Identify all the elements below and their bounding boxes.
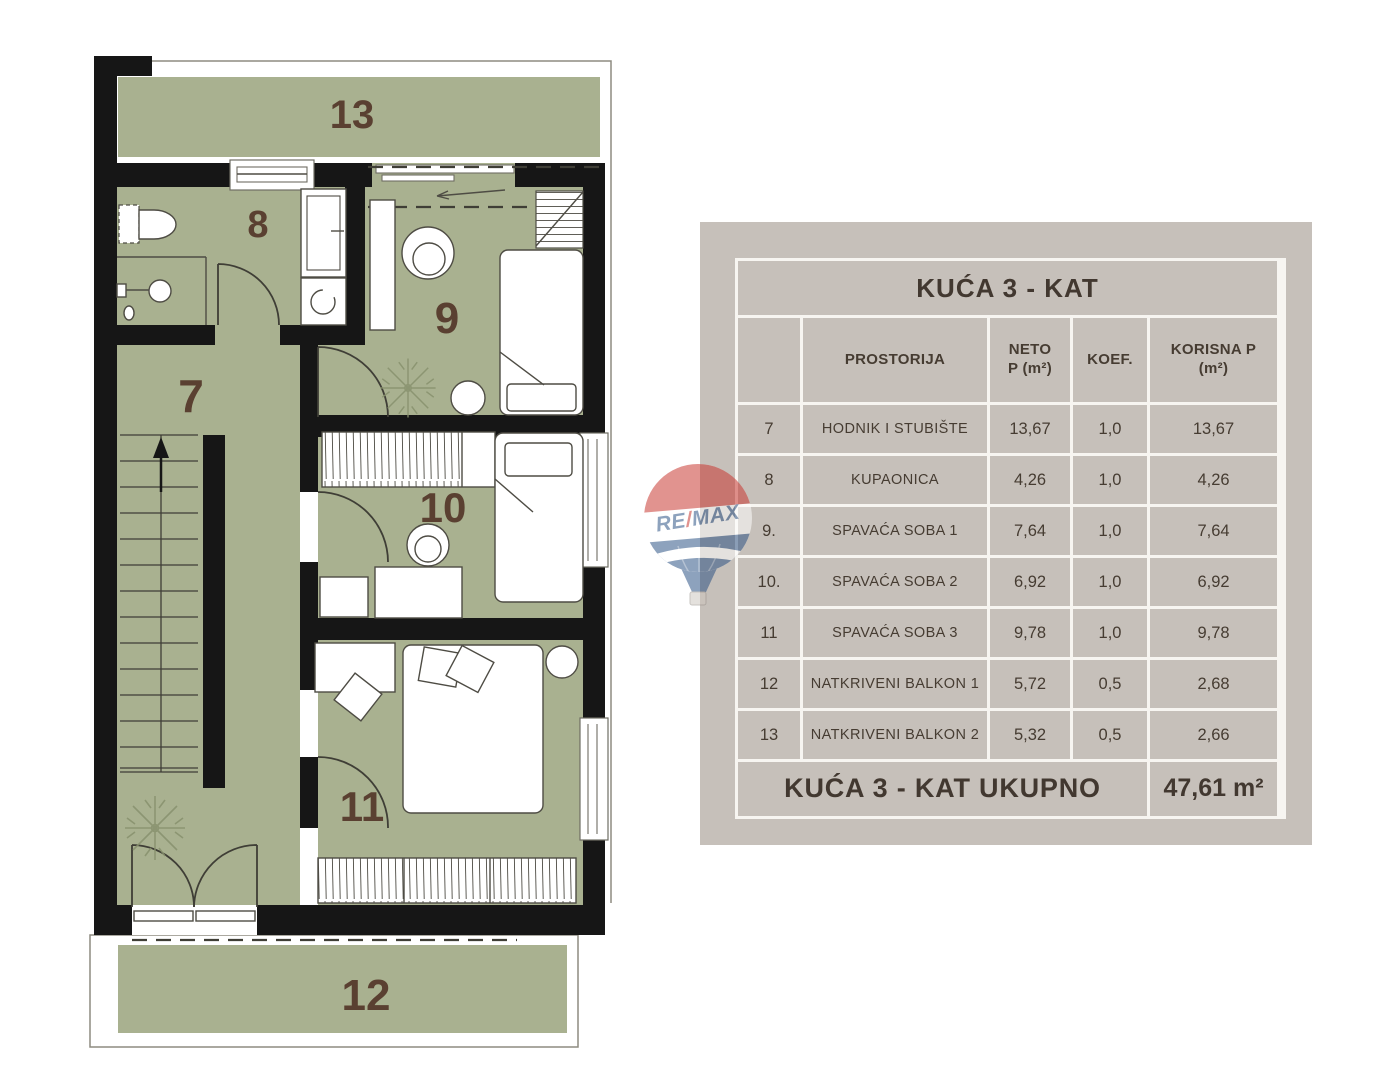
row-korisna: 2,68 (1150, 660, 1277, 708)
row-korisna: 4,26 (1150, 456, 1277, 504)
row-koef: 1,0 (1073, 609, 1147, 657)
bathroom-window-icon (230, 160, 314, 190)
toilet-icon (139, 210, 176, 239)
header-neto: NETO P (m²) (990, 318, 1070, 402)
desk-icon (375, 567, 462, 618)
single-bed-icon (500, 250, 583, 415)
flyer-page: 13 8 9 7 10 11 12 KUĆA 3 - KAT PROSTORIJ… (0, 0, 1398, 1080)
radiator-icon (536, 191, 583, 248)
wardrobe-icon (322, 432, 495, 487)
row-koef: 1,0 (1073, 405, 1147, 453)
cabinet-icon (320, 577, 368, 617)
room-label-8: 8 (247, 204, 268, 246)
balloon-basket-icon (690, 592, 706, 605)
row-name: SPAVAĆA SOBA 2 (803, 558, 987, 606)
row-neto: 5,32 (990, 711, 1070, 759)
room-label-9: 9 (435, 294, 459, 343)
stair-stringer (203, 435, 225, 788)
single-bed-icon (495, 433, 583, 602)
row-neto: 7,64 (990, 507, 1070, 555)
row-name: SPAVAĆA SOBA 3 (803, 609, 987, 657)
header-neto-line2: P (m²) (1008, 360, 1052, 379)
window-bedroom-10-icon (580, 433, 608, 567)
row-num: 7 (738, 405, 800, 453)
room-label-13: 13 (330, 93, 375, 137)
room-label-12: 12 (342, 971, 391, 1020)
header-korisna-line1: KORISNA P (1171, 341, 1257, 360)
area-table-panel: KUĆA 3 - KAT PROSTORIJA NETO P (m²) KOEF… (700, 222, 1312, 845)
table-footer-total: 47,61 m² (1150, 762, 1277, 816)
logo-text-re: RE (654, 509, 688, 537)
table-footer-label: KUĆA 3 - KAT UKUPNO (738, 762, 1147, 816)
row-korisna: 6,92 (1150, 558, 1277, 606)
table-title: KUĆA 3 - KAT (738, 261, 1277, 315)
header-korisna-line2: (m²) (1199, 360, 1229, 379)
double-bed-icon (403, 645, 543, 813)
header-neto-line1: NETO (1009, 341, 1052, 360)
header-koef: KOEF. (1073, 318, 1147, 402)
row-name: NATKRIVENI BALKON 2 (803, 711, 987, 759)
header-korisna: KORISNA P (m²) (1150, 318, 1277, 402)
row-neto: 6,92 (990, 558, 1070, 606)
shower-icon (301, 189, 346, 277)
row-num: 12 (738, 660, 800, 708)
row-korisna: 13,67 (1150, 405, 1277, 453)
remax-balloon-logo: RE/MAX (640, 460, 758, 612)
row-neto: 13,67 (990, 405, 1070, 453)
area-table: KUĆA 3 - KAT PROSTORIJA NETO P (m²) KOEF… (735, 258, 1286, 819)
row-neto: 4,26 (990, 456, 1070, 504)
desk-icon (370, 200, 395, 330)
header-prostorija: PROSTORIJA (803, 318, 987, 402)
row-korisna: 7,64 (1150, 507, 1277, 555)
row-koef: 0,5 (1073, 711, 1147, 759)
row-name: NATKRIVENI BALKON 1 (803, 660, 987, 708)
window-bedroom-11-icon (580, 718, 608, 840)
row-koef: 1,0 (1073, 507, 1147, 555)
row-koef: 1,0 (1073, 456, 1147, 504)
header-num (738, 318, 800, 402)
wardrobe-icon (318, 858, 576, 903)
row-name: SPAVAĆA SOBA 1 (803, 507, 987, 555)
balloon-icon: RE/MAX (640, 460, 758, 605)
row-korisna: 2,66 (1150, 711, 1277, 759)
row-num: 13 (738, 711, 800, 759)
row-neto: 9,78 (990, 609, 1070, 657)
row-neto: 5,72 (990, 660, 1070, 708)
stool-icon (451, 381, 485, 415)
floor-plan: 13 8 9 7 10 11 12 (0, 0, 660, 1080)
row-num: 11 (738, 609, 800, 657)
office-chair-icon (402, 227, 454, 279)
toilet-cistern-icon (119, 205, 139, 243)
row-name: KUPAONICA (803, 456, 987, 504)
row-koef: 1,0 (1073, 558, 1147, 606)
row-koef: 0,5 (1073, 660, 1147, 708)
row-korisna: 9,78 (1150, 609, 1277, 657)
room-label-10: 10 (420, 484, 467, 531)
room-label-7: 7 (178, 370, 204, 422)
row-name: HODNIK I STUBIŠTE (803, 405, 987, 453)
side-table-icon (546, 646, 578, 678)
washing-machine-icon (301, 278, 346, 325)
room-label-11: 11 (340, 783, 384, 830)
